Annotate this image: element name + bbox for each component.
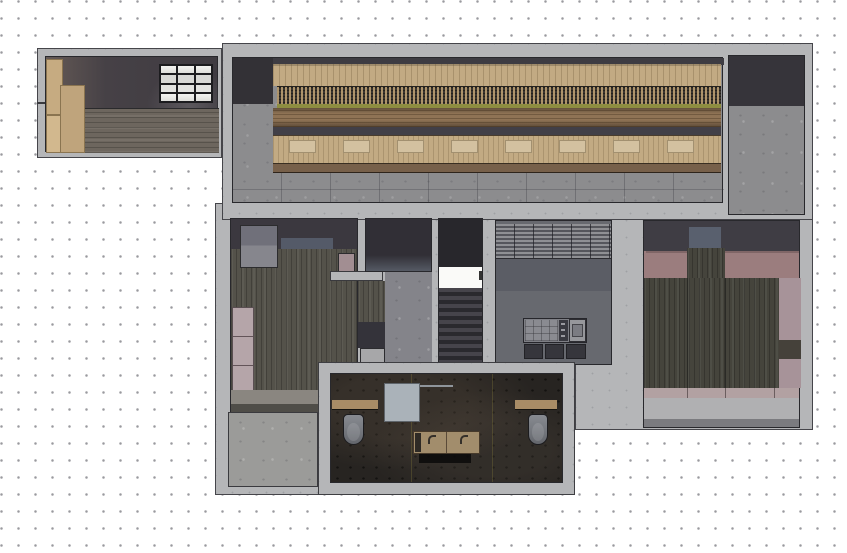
island-drawer [566, 344, 586, 359]
window-pane [161, 85, 176, 92]
seat-cushion [613, 140, 640, 153]
slatted-screen[interactable] [277, 86, 721, 105]
entry-cabinet-stack[interactable] [46, 59, 86, 153]
control-strip [559, 320, 568, 341]
window-pane [178, 66, 193, 73]
seat-cushion [505, 140, 532, 153]
stair-handrail-tick [479, 271, 482, 280]
stair-steps [439, 288, 482, 367]
foot-runner [644, 388, 799, 398]
wood-shelf[interactable] [515, 400, 557, 410]
window-pane [178, 85, 193, 92]
stair-landing [439, 267, 482, 288]
oven-door [572, 324, 583, 337]
hall-back-counter [273, 64, 721, 86]
hallway[interactable] [385, 272, 432, 368]
window-pane [196, 94, 211, 101]
island-drawer [524, 344, 543, 359]
island-drawer [545, 344, 564, 359]
cabinet-box [46, 115, 61, 153]
wood-shelf[interactable] [332, 400, 378, 410]
seat-cushion [559, 140, 586, 153]
bedroom-east-rug[interactable] [689, 227, 721, 249]
room-kitchen[interactable] [495, 220, 612, 365]
faucet [460, 435, 468, 444]
room-inner[interactable] [365, 218, 432, 272]
window-pane [196, 66, 211, 73]
design-canvas[interactable] [0, 0, 847, 553]
room-bathroom[interactable] [330, 373, 563, 483]
seat-cushion [289, 140, 316, 153]
window-pane [178, 75, 193, 82]
inner-room-light-edge [366, 255, 431, 271]
room-storage[interactable] [728, 55, 805, 215]
window-pane [178, 94, 193, 101]
bed-platform[interactable] [644, 278, 779, 388]
glass-panel-rail [420, 385, 453, 387]
runner-seam [725, 388, 726, 398]
runner-seam [774, 388, 775, 398]
faucet [428, 435, 436, 444]
room-entry[interactable] [45, 56, 218, 152]
window-pane [161, 75, 176, 82]
hall-left-dark-block [233, 58, 273, 104]
extension-dark-patch [358, 322, 385, 348]
side-runner-box [779, 340, 801, 359]
basin-divider [446, 432, 447, 453]
hob-panel [525, 320, 558, 341]
bedroom-east-dark-strip [644, 419, 799, 427]
runner-seam [687, 388, 688, 398]
bench-plinth [273, 164, 721, 173]
seat-cushion [343, 140, 370, 153]
bedroom-west-extension [358, 281, 385, 322]
platform-seam [687, 278, 688, 388]
cabinet-box [60, 85, 85, 153]
storage-dark-band [729, 56, 804, 106]
window-pane [161, 94, 176, 101]
floor-joint-line [233, 189, 724, 190]
storage-concrete [729, 106, 804, 214]
bar-counter[interactable] [273, 108, 721, 127]
platform-seam [725, 278, 726, 388]
window[interactable] [159, 64, 213, 103]
vanity-end-panel [415, 433, 421, 452]
closet[interactable] [240, 225, 278, 268]
toilet[interactable] [343, 414, 364, 445]
window-pane [161, 66, 176, 73]
slat-blind-band [496, 224, 611, 259]
glass-panel[interactable] [384, 383, 420, 422]
kitchen-island[interactable] [523, 318, 587, 359]
kitchen-mid-band [496, 259, 611, 291]
window-pane [196, 75, 211, 82]
wall-joint-line [37, 102, 45, 104]
bench-seating[interactable] [273, 135, 721, 164]
oven [569, 319, 586, 342]
bedroom-east-dark-band [644, 221, 799, 251]
room-main-hall[interactable] [232, 57, 723, 203]
bed-head-extension [687, 248, 725, 280]
seat-cushion [397, 140, 424, 153]
staircase[interactable] [438, 218, 483, 368]
patio[interactable] [228, 412, 318, 487]
double-sink-vanity[interactable] [413, 431, 480, 454]
bedroom-east-light-band [644, 398, 799, 419]
toilet[interactable] [528, 414, 548, 445]
rug[interactable] [281, 238, 333, 249]
seat-cushion [451, 140, 478, 153]
side-table[interactable] [338, 253, 355, 273]
wall-stub [330, 271, 383, 281]
vanity-legs-shadow [419, 454, 471, 463]
side-runner [779, 278, 801, 388]
seat-cushion [667, 140, 694, 153]
window-pane [196, 85, 211, 92]
room-bedroom-east[interactable] [643, 220, 800, 428]
wardrobe[interactable] [232, 307, 254, 395]
